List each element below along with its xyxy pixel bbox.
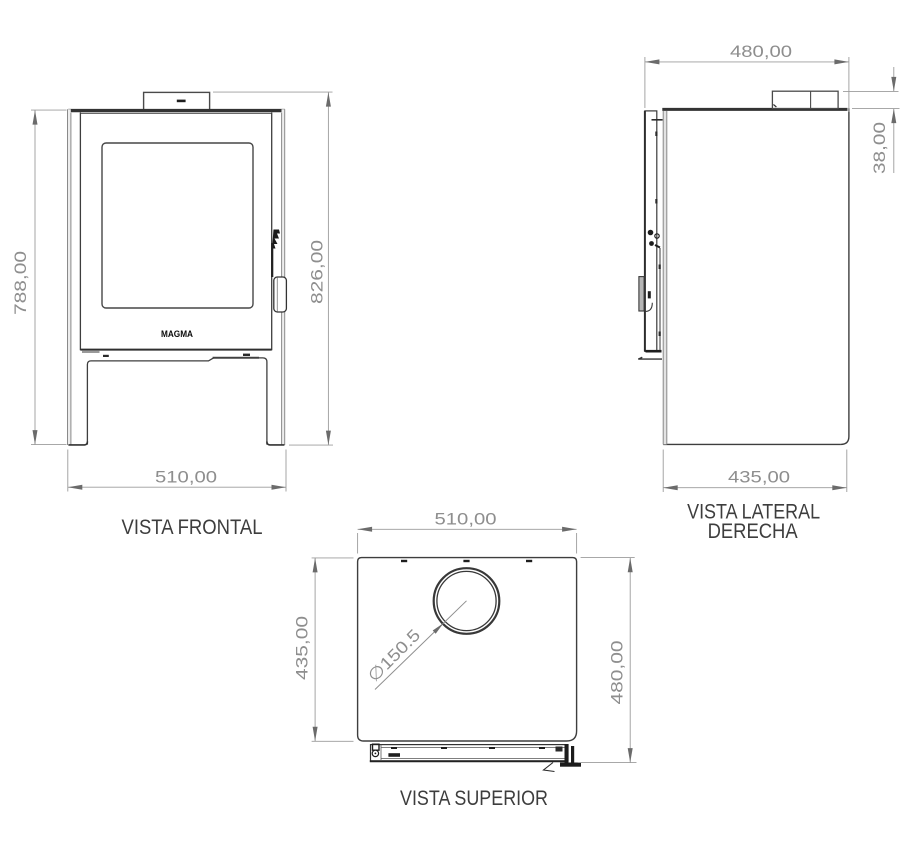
svg-text:VISTA FRONTAL: VISTA FRONTAL <box>122 516 263 539</box>
svg-text:VISTA SUPERIOR: VISTA SUPERIOR <box>400 787 548 810</box>
svg-text:510,00: 510,00 <box>435 510 497 529</box>
svg-text:510,00: 510,00 <box>155 467 217 486</box>
svg-text:435,00: 435,00 <box>293 616 312 680</box>
svg-text:826,00: 826,00 <box>308 240 327 304</box>
svg-text:38,00: 38,00 <box>870 122 889 174</box>
svg-text:DERECHA: DERECHA <box>708 520 798 543</box>
svg-text:788,00: 788,00 <box>11 251 30 315</box>
svg-text:480,00: 480,00 <box>730 42 792 61</box>
svg-text:MAGMA: MAGMA <box>161 329 193 339</box>
svg-text:435,00: 435,00 <box>728 468 790 487</box>
svg-text:480,00: 480,00 <box>608 641 627 705</box>
